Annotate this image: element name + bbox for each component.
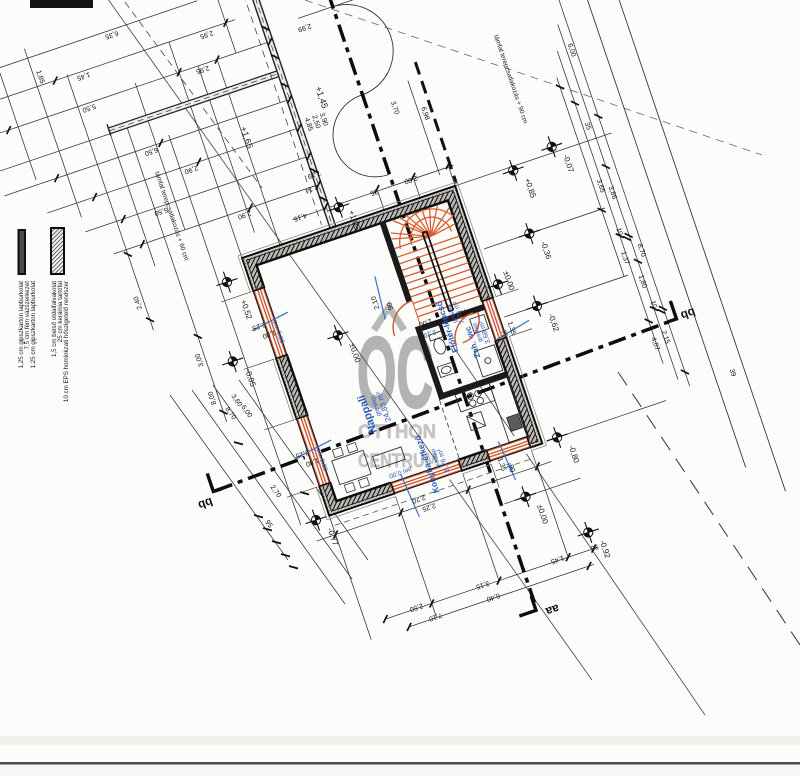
svg-text:1,25 cm gipszkarton lapburkola: 1,25 cm gipszkarton lapburkolat — [30, 281, 37, 369]
svg-text:10 cm EPS homlokzati hőszigete: 10 cm EPS homlokzati hőszigetelő rendsze… — [63, 281, 70, 402]
